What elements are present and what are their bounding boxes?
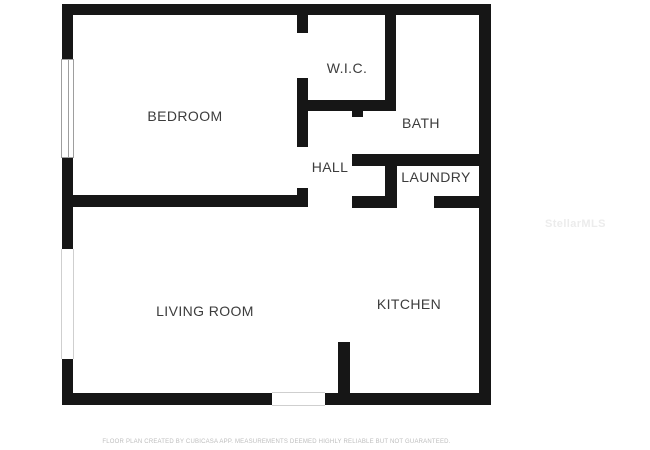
entry-door-opening: [272, 392, 325, 406]
floor-plan: BEDROOM W.I.C. BATH HALL LAUNDRY LIVING …: [0, 0, 650, 450]
footer-disclaimer: FLOOR PLAN CREATED BY CUBICASA APP. MEAS…: [62, 439, 491, 445]
bedroom-hall-wall: [297, 78, 308, 147]
laundry-left-wall: [385, 166, 397, 198]
bedroom-window: [61, 59, 74, 158]
room-label-hall: HALL: [312, 159, 349, 175]
bedroom-wic-wall-upper: [297, 15, 308, 33]
room-label-laundry: LAUNDRY: [401, 169, 470, 185]
hall-bottom-wall: [352, 196, 397, 208]
bath-laundry-wall: [352, 154, 479, 166]
room-label-kitchen: KITCHEN: [377, 296, 441, 312]
room-label-wic: W.I.C.: [327, 60, 368, 76]
exterior-wall-right: [479, 4, 491, 405]
bedroom-living-wall: [62, 195, 308, 207]
room-label-living-room: LIVING ROOM: [156, 303, 254, 319]
wic-bath-wall: [385, 15, 396, 111]
room-label-bath: BATH: [402, 115, 440, 131]
living-room-window-opening: [61, 249, 74, 359]
bath-door-stub: [352, 111, 363, 117]
exterior-wall-top: [62, 4, 491, 15]
wic-bottom-wall: [297, 100, 396, 111]
window-pane-line: [68, 60, 69, 157]
mls-watermark: StellarMLS: [545, 218, 606, 230]
kitchen-living-wall: [338, 342, 350, 405]
laundry-bottom-wall: [434, 196, 479, 208]
room-label-bedroom: BEDROOM: [147, 108, 222, 124]
